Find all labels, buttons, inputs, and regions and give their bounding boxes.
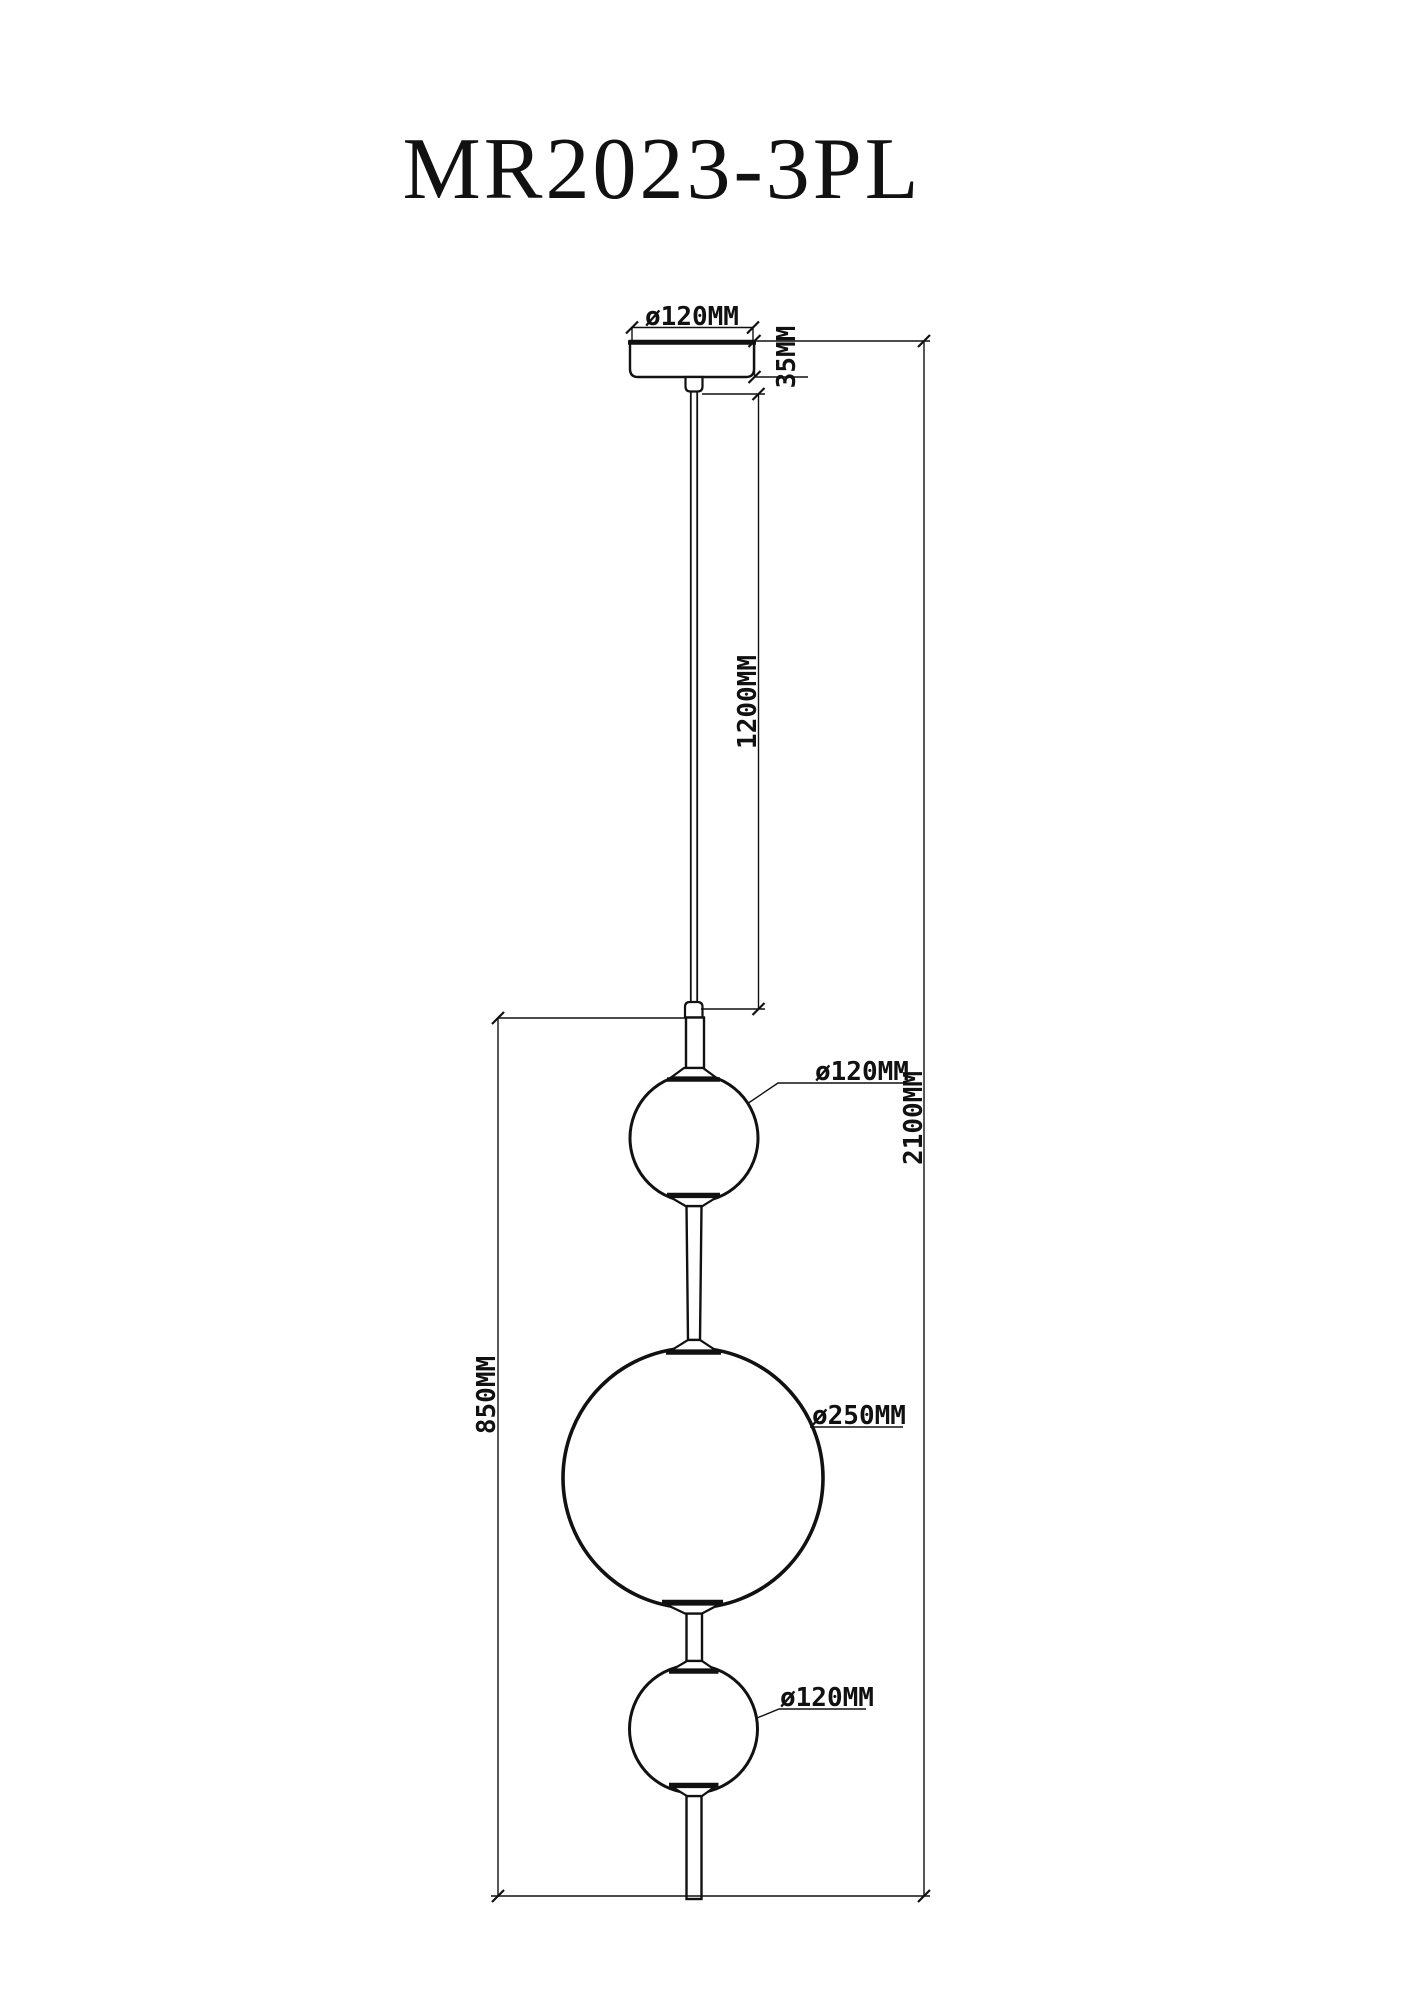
lower-globe-bottom-collar [669,1785,719,1796]
leader-upper-globe: ø120MM [747,1057,909,1104]
leader-lower-globe: ø120MM [757,1683,874,1718]
dim-overall-height: 2100MM [899,335,930,1902]
leader-middle-globe: ø250MM [810,1401,906,1431]
label-canopy-diameter: ø120MM [645,302,739,332]
suspension-cable [691,392,697,1003]
middle-globe-bottom-collar [662,1602,723,1614]
stem-middle-lower [687,1614,703,1662]
cable-end-connector [685,1002,703,1018]
label-fixture-height: 850MM [472,1356,502,1434]
ceiling-canopy [630,341,754,377]
glass-globe-lower [630,1665,758,1793]
bottom-stem [687,1796,702,1899]
label-middle-globe-diameter: ø250MM [812,1401,906,1431]
upper-globe-bottom-collar [667,1195,720,1206]
label-lower-globe-diameter: ø120MM [780,1683,874,1713]
dim-canopy-height: 35MM [749,326,931,389]
label-cable-length: 1200MM [733,655,763,749]
technical-drawing-page: MR2023-3PL [0,0,1413,2000]
dim-cable-length: 1200MM [701,388,765,1015]
upper-stem [686,1018,704,1069]
upper-globe-top-collar [667,1068,720,1080]
canopy-cable-connector [686,377,703,392]
lower-globe-top-collar [669,1661,719,1672]
label-canopy-height: 35MM [772,326,802,389]
pendant-lamp-dimension-drawing: MR2023-3PL [0,0,1413,2000]
dim-canopy-diameter: ø120MM [626,302,759,340]
label-upper-globe-diameter: ø120MM [815,1057,909,1087]
product-title: MR2023-3PL [403,121,922,218]
middle-globe-top-collar [666,1340,721,1353]
glass-globe-middle [563,1348,823,1608]
stem-upper-middle [687,1206,702,1340]
glass-globe-upper [630,1074,758,1202]
